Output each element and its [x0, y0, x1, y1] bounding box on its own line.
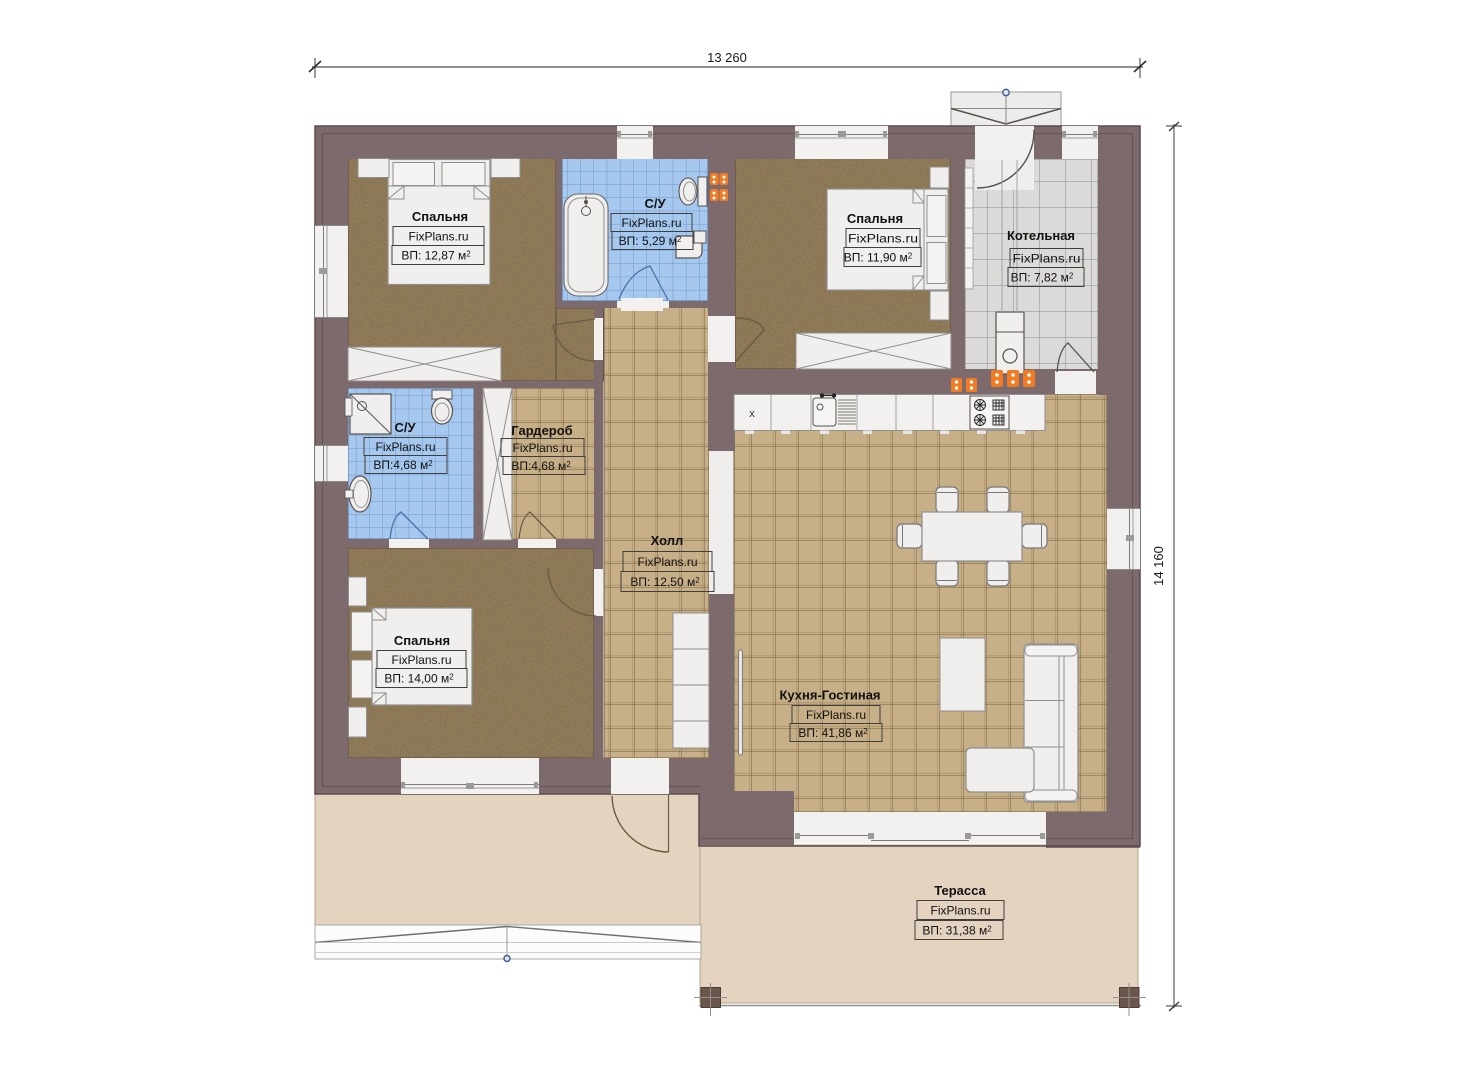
svg-text:ВП: 7,82 м2: ВП: 7,82 м2: [1011, 271, 1074, 285]
svg-text:FixPlans.ru: FixPlans.ru: [848, 232, 918, 246]
svg-text:ВП: 31,38 м2: ВП: 31,38 м2: [922, 924, 992, 938]
svg-text:Холл: Холл: [651, 533, 684, 548]
svg-text:ВП: 12,50 м2: ВП: 12,50 м2: [630, 575, 700, 589]
svg-text:FixPlans.ru: FixPlans.ru: [375, 440, 435, 454]
svg-text:FixPlans.ru: FixPlans.ru: [391, 653, 451, 667]
svg-text:ВП: 41,86 м2: ВП: 41,86 м2: [798, 726, 868, 740]
svg-text:FixPlans.ru: FixPlans.ru: [621, 216, 681, 230]
svg-text:FixPlans.ru: FixPlans.ru: [930, 904, 990, 918]
svg-text:Гардероб: Гардероб: [511, 423, 572, 438]
svg-text:ВП: 5,29 м2: ВП: 5,29 м2: [619, 234, 682, 248]
svg-text:ВП: 11,90 м2: ВП: 11,90 м2: [844, 251, 913, 265]
svg-text:Спальня: Спальня: [412, 209, 468, 224]
svg-text:14 160: 14 160: [1151, 546, 1166, 586]
svg-text:ВП: 12,87 м2: ВП: 12,87 м2: [401, 249, 471, 263]
svg-text:х: х: [749, 408, 755, 420]
svg-text:ВП:4,68 м2: ВП:4,68 м2: [373, 458, 433, 472]
svg-text:13 260: 13 260: [707, 50, 747, 65]
svg-text:ВП: 14,00 м2: ВП: 14,00 м2: [384, 672, 454, 686]
svg-text:Кухня-Гостиная: Кухня-Гостиная: [779, 688, 880, 703]
svg-text:С/У: С/У: [644, 196, 666, 211]
svg-text:FixPlans.ru: FixPlans.ru: [512, 441, 572, 455]
svg-text:FixPlans.ru: FixPlans.ru: [806, 708, 866, 722]
svg-text:FixPlans.ru: FixPlans.ru: [637, 555, 697, 569]
svg-text:Терасса: Терасса: [934, 883, 986, 898]
svg-text:Спальня: Спальня: [394, 633, 450, 648]
svg-text:Спальня: Спальня: [847, 211, 903, 226]
svg-text:FixPlans.ru: FixPlans.ru: [1013, 252, 1081, 266]
svg-text:ВП:4,68 м2: ВП:4,68 м2: [511, 459, 571, 473]
svg-text:Котельная: Котельная: [1007, 228, 1075, 243]
svg-text:FixPlans.ru: FixPlans.ru: [408, 230, 468, 244]
svg-text:С/У: С/У: [394, 420, 416, 435]
